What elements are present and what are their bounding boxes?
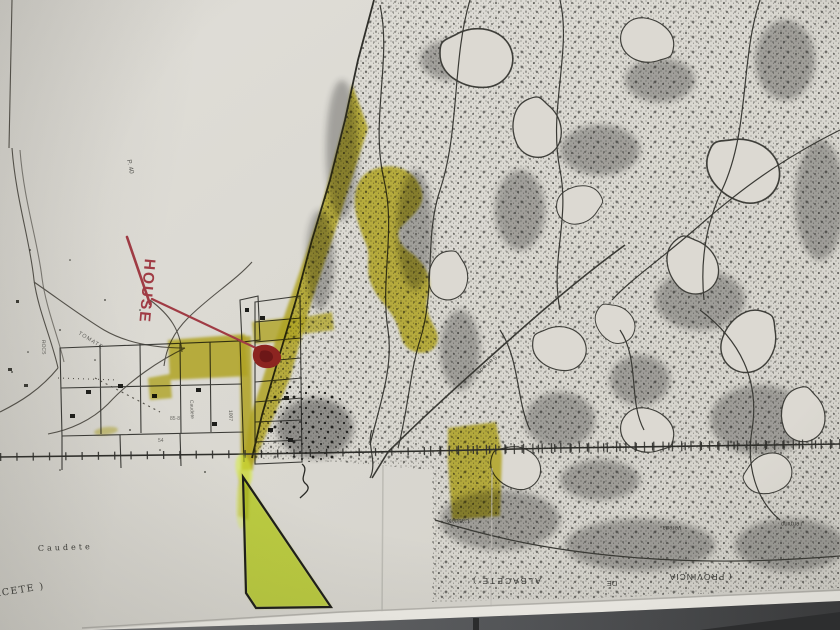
- cadastral-map: Caudete ACETE ) P. 40 TOMATE ROCS Caudet…: [0, 0, 840, 630]
- label-road-rocs: ROCS: [40, 340, 47, 355]
- label-albacete: ALBACETE ): [471, 576, 541, 586]
- label-caudete-town: Caudete: [38, 542, 93, 553]
- label-caudete-small: Caudete: [446, 517, 469, 523]
- map-photo: Caudete ACETE ) P. 40 TOMATE ROCS Caudet…: [0, 0, 840, 630]
- label-provincia: ( PROVINCIA: [669, 572, 732, 582]
- label-plot-1007: 1007: [227, 410, 233, 422]
- label-plot-54: 54: [158, 438, 164, 444]
- label-village-street: Caudete: [188, 400, 195, 419]
- label-termino: Término: [780, 520, 803, 526]
- label-plot-85: 85·8: [170, 416, 180, 422]
- label-vereda: Vereda: [662, 524, 682, 530]
- label-de: DE: [607, 579, 617, 588]
